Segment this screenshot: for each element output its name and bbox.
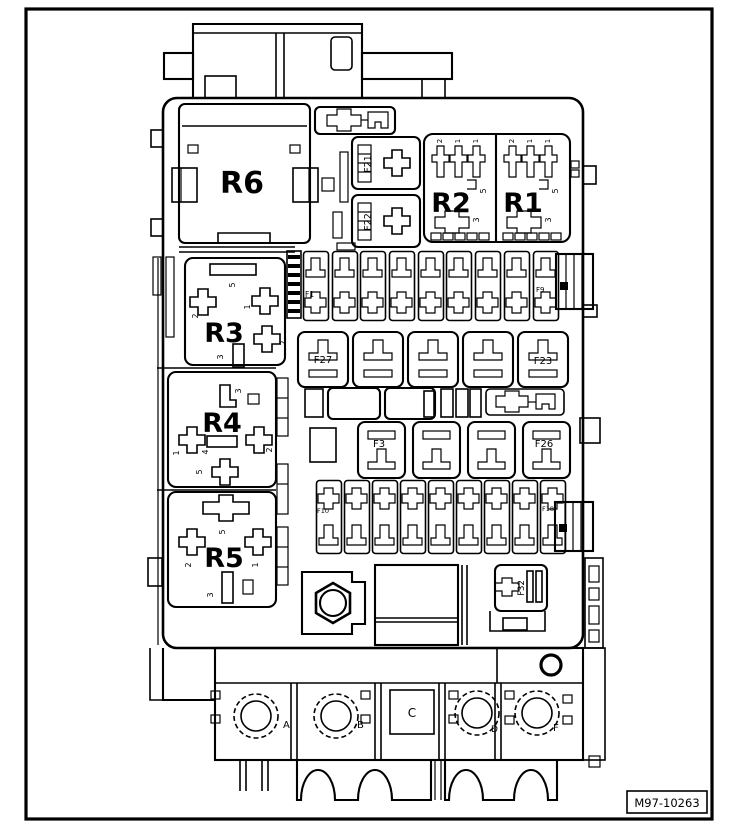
fuse-f32: F32 <box>490 565 547 631</box>
relay-r2-label: R2 <box>431 188 471 219</box>
relay-r1-pin1-label: 2 <box>508 139 516 143</box>
relay-r5: 5 2 1 R5 3 <box>168 492 276 607</box>
fuse-row-bottom-first-label: F10 <box>317 507 329 515</box>
relay-block-r2-r1: 2 1 1 R2 5 3 2 1 1 R1 5 3 <box>424 134 579 242</box>
right-edge-tabs <box>583 166 603 648</box>
relay-r5-pin-bottom-label: 3 <box>206 592 215 597</box>
bottom-skirt <box>240 760 557 800</box>
left-lug <box>164 53 193 79</box>
relay-r4-pin-right-label: 2 <box>265 447 274 452</box>
terminal-f-label: F <box>553 723 559 734</box>
mount-hole <box>541 655 561 675</box>
relay-r4-pin-top-label: 3 <box>234 388 243 393</box>
fuse-f21-label: F21 <box>363 155 374 173</box>
terminal-b <box>314 694 358 738</box>
relay-r4: 3 1 4 2 5 R4 <box>168 372 276 487</box>
relay-socket-row-lower: F3 F26 <box>310 422 570 478</box>
relay-r1-pin3-label: 1 <box>544 139 552 143</box>
relay-r5-label: R5 <box>204 543 244 574</box>
relay-r1-label: R1 <box>503 188 543 219</box>
relay-r4-label: R4 <box>202 408 242 439</box>
fuse-f22-label: F22 <box>363 213 374 231</box>
right-lug <box>362 53 452 79</box>
relay-r6: R6 <box>172 104 318 252</box>
fuse-row-top: F1 F9 <box>304 252 559 321</box>
relay-r3-pin-bottom-label: 3 <box>216 354 225 359</box>
relay-row-upper-last-label: F23 <box>534 356 552 367</box>
terminal-strip: A B C D F <box>150 648 605 767</box>
relay-r3-pin-left-label: 2 <box>191 313 200 318</box>
relay-r1-pin-bottom-label: 3 <box>544 217 553 222</box>
mid-column-bars <box>277 378 288 585</box>
relay-r1-pin-side-label: 5 <box>551 188 560 193</box>
relay-r4-pin-center-label: 4 <box>201 449 210 454</box>
relay-row-upper-first-label: F27 <box>314 355 332 366</box>
fuse-box-diagram: R6 F21 F22 2 1 1 R2 5 3 2 1 1 R1 5 3 <box>0 0 731 831</box>
relay-r5-pin-right-label: 1 <box>251 562 260 567</box>
relay-r5-pin-top-label: 5 <box>218 529 227 534</box>
fuse-row-top-first-label: F1 <box>305 290 314 299</box>
terminal-c-label: C <box>408 706 416 720</box>
relay-r5-pin-left-label: 2 <box>184 562 193 567</box>
fuse-row-bottom-last-label: F18 <box>542 505 554 513</box>
fuse-row-top-last-label: F9 <box>536 286 544 294</box>
relay-r3: 5 2 1 2 R3 3 <box>185 258 288 367</box>
left-edge-tabs <box>148 130 174 586</box>
terminal-a-label: A <box>283 720 290 731</box>
relay-r3-pin-right-label: 1 <box>243 304 252 309</box>
top-fuse-holder <box>315 107 395 134</box>
right-connector-upper <box>556 254 593 309</box>
fuse-f21: F21 <box>352 137 420 189</box>
mounting-bolt <box>302 572 365 634</box>
relay-r2-pin-side-label: 5 <box>479 188 488 193</box>
relay-r3-pin-lower-right-label: 2 <box>279 340 288 345</box>
right-connector-lower <box>555 502 593 551</box>
middle-compartment <box>375 565 467 645</box>
relay-r2-pin3-label: 1 <box>472 139 480 143</box>
relay-r1-pin2-label: 1 <box>526 139 534 143</box>
fuse-f32-label: F32 <box>517 580 527 596</box>
relay-r3-pin-top-label: 5 <box>228 282 237 287</box>
figure-id: M97-10263 <box>627 791 707 813</box>
relay-r4-pin-bottom-label: 5 <box>195 469 204 474</box>
blank-connector-row <box>305 388 600 443</box>
relay-r2-pin2-label: 1 <box>454 139 462 143</box>
relay-r2-pin-bottom-label: 3 <box>472 217 481 222</box>
terminal-a <box>234 694 278 738</box>
top-connector-housing <box>164 24 452 98</box>
relay-row-lower-last-label: F26 <box>535 439 553 450</box>
relay-r6-label: R6 <box>220 166 264 201</box>
diagram-canvas: R6 F21 F22 2 1 1 R2 5 3 2 1 1 R1 5 3 <box>0 0 731 831</box>
terminal-d-label: D <box>491 725 498 735</box>
figure-frame <box>26 9 712 819</box>
fuse-f22: F22 <box>352 195 420 247</box>
relay-row-lower-first-label: F3 <box>373 439 385 450</box>
fuse-row-bottom: F10 F18 <box>317 481 566 554</box>
relay-r2-pin1-label: 2 <box>436 139 444 143</box>
misc-connector-bits <box>322 152 348 238</box>
relay-r4-pin-left-label: 1 <box>172 450 181 455</box>
terminal-b-label: B <box>357 720 364 731</box>
figure-id-label: M97-10263 <box>634 796 699 810</box>
relay-socket-row-upper: F27 F23 <box>298 332 568 387</box>
